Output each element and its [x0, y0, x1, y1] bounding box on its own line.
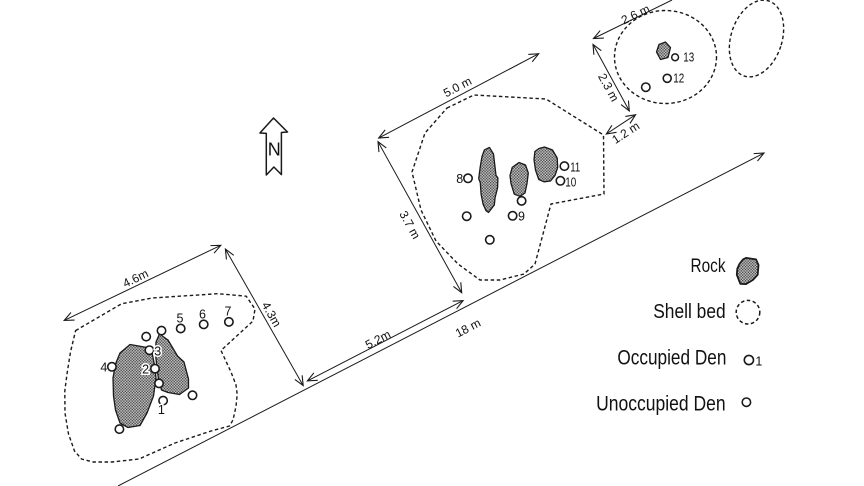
svg-text:Shell bed: Shell bed: [653, 301, 726, 323]
svg-text:3: 3: [154, 345, 161, 359]
svg-text:8: 8: [456, 172, 463, 186]
svg-text:1: 1: [755, 354, 762, 368]
svg-text:4.6m: 4.6m: [120, 266, 150, 290]
svg-text:2.6 m: 2.6 m: [619, 2, 652, 28]
svg-text:3.7 m: 3.7 m: [396, 208, 423, 241]
svg-text:Unoccupied Den: Unoccupied Den: [596, 392, 726, 416]
svg-text:4: 4: [100, 361, 107, 375]
svg-text:7: 7: [225, 304, 232, 318]
svg-text:5.2m: 5.2m: [363, 327, 393, 352]
svg-text:9: 9: [518, 210, 525, 224]
svg-text:N: N: [268, 140, 281, 160]
svg-text:1.2 m: 1.2 m: [609, 119, 642, 147]
svg-text:1: 1: [158, 403, 165, 417]
svg-text:Rock: Rock: [691, 256, 726, 277]
svg-text:12: 12: [673, 72, 684, 86]
svg-text:11: 11: [570, 161, 580, 175]
svg-text:5: 5: [177, 312, 184, 326]
svg-text:Occupied Den: Occupied Den: [617, 346, 726, 370]
svg-text:2: 2: [142, 363, 149, 377]
svg-text:6: 6: [199, 307, 206, 321]
svg-text:2.3 m: 2.3 m: [595, 71, 622, 104]
svg-text:13: 13: [683, 51, 694, 65]
svg-text:18 m: 18 m: [453, 316, 483, 341]
svg-text:10: 10: [565, 175, 576, 189]
